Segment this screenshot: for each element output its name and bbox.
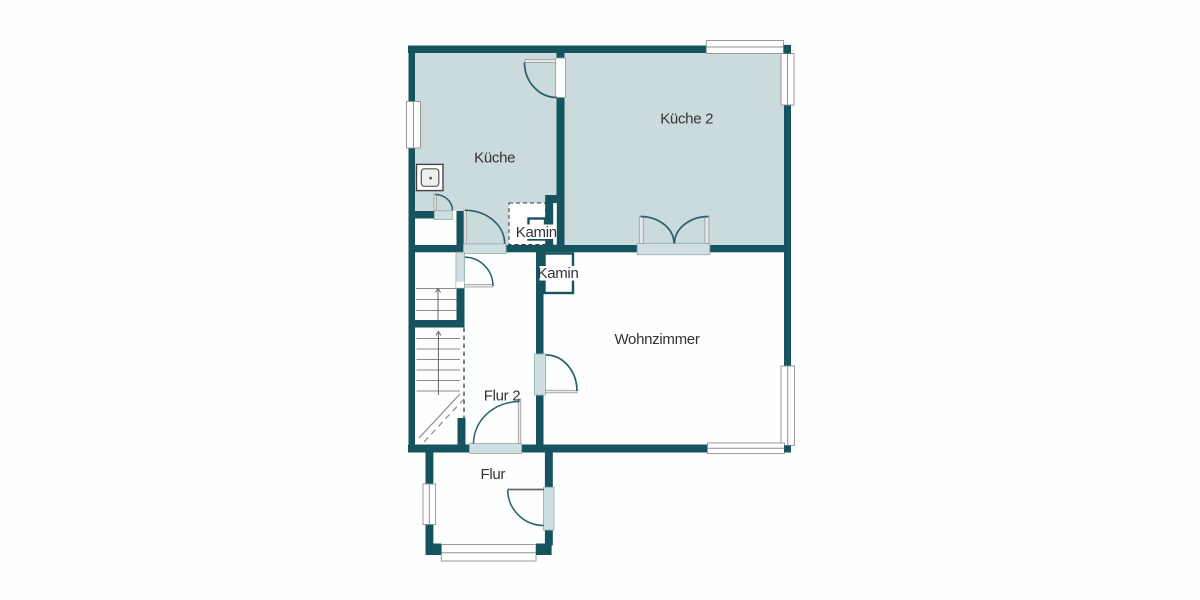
svg-text:Küche: Küche xyxy=(474,149,515,166)
svg-text:Flur: Flur xyxy=(480,466,505,483)
svg-text:Küche 2: Küche 2 xyxy=(660,110,713,127)
svg-text:Kamin: Kamin xyxy=(537,265,578,282)
svg-text:Kamin: Kamin xyxy=(516,224,557,241)
svg-text:Wohnzimmer: Wohnzimmer xyxy=(614,331,699,348)
svg-text:Flur 2: Flur 2 xyxy=(484,388,521,405)
